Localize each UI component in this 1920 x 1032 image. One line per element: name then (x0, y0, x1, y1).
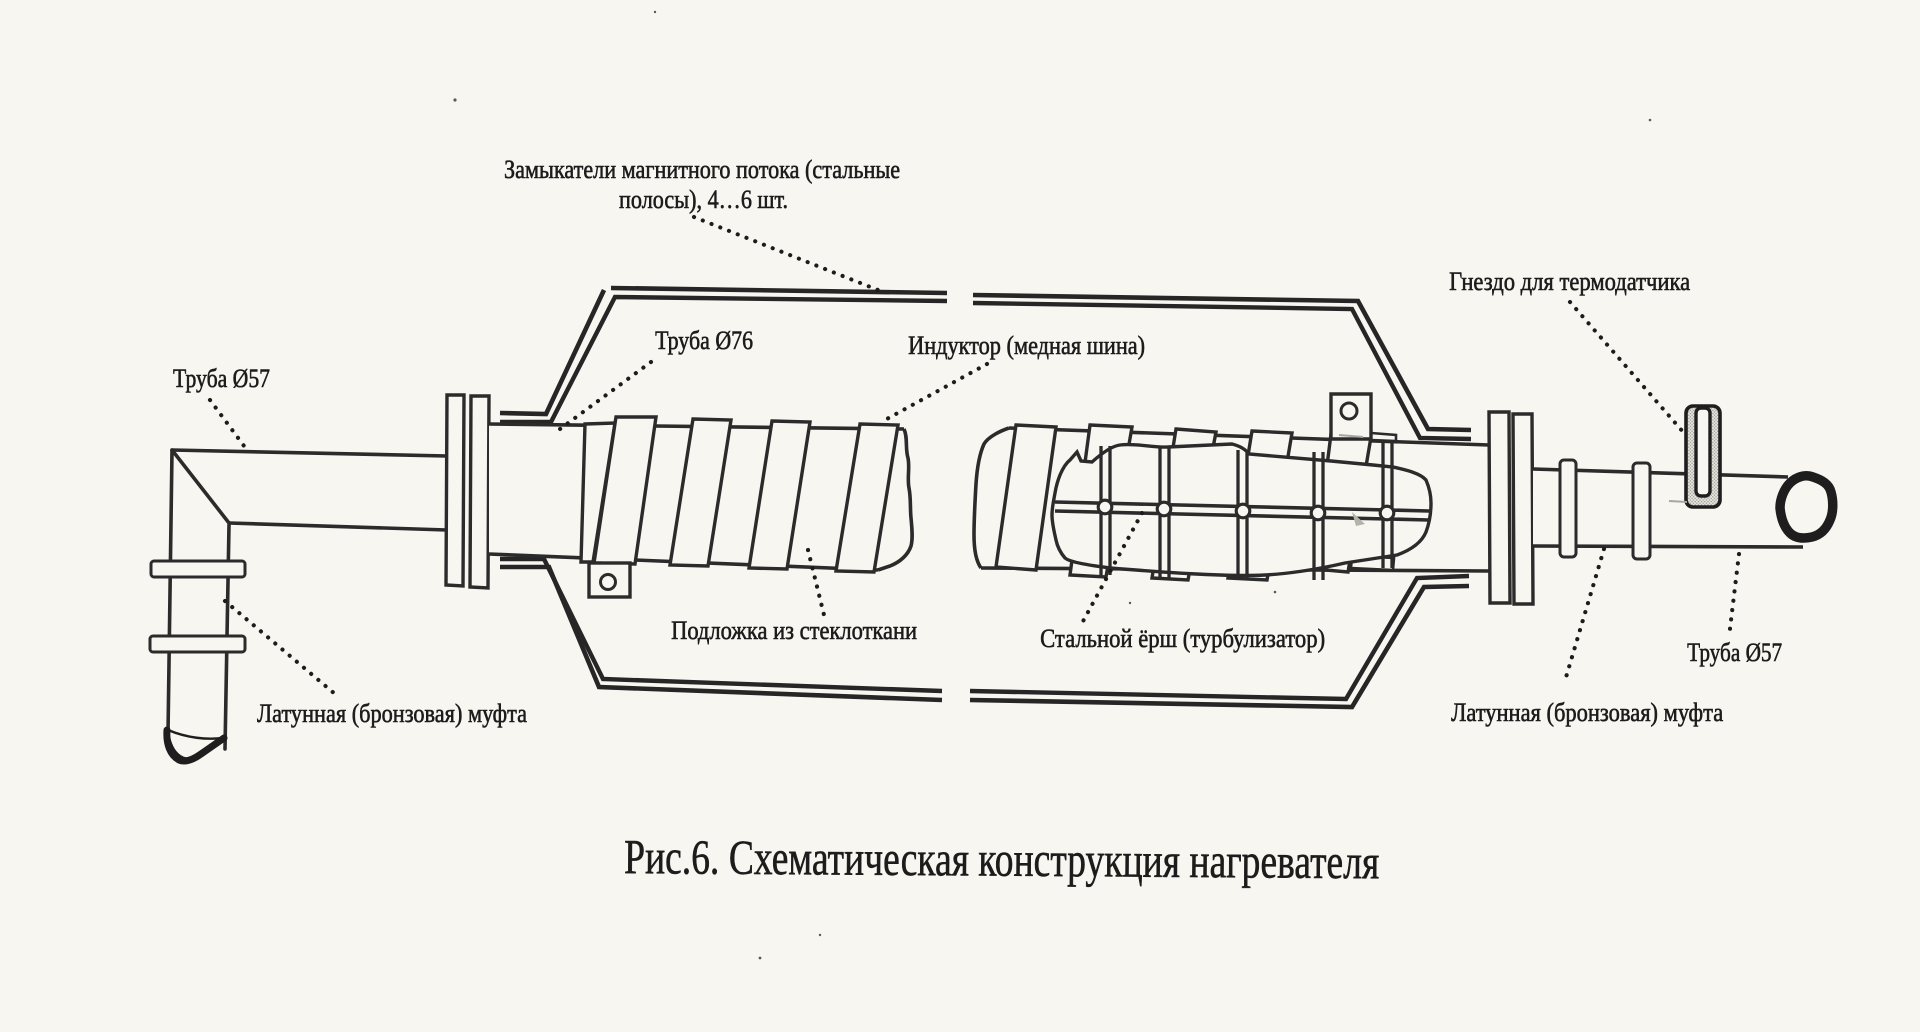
svg-text:Стальной ёрш (турбулизатор): Стальной ёрш (турбулизатор) (1040, 624, 1325, 653)
svg-text:Труба Ø76: Труба Ø76 (655, 326, 753, 355)
svg-text:Труба Ø57: Труба Ø57 (1687, 638, 1782, 667)
svg-text:Труба Ø57: Труба Ø57 (173, 364, 270, 393)
svg-text:Латунная (бронзовая) муфта: Латунная (бронзовая) муфта (257, 699, 527, 728)
svg-text:Замыкатели магнитного потока (: Замыкатели магнитного потока (стальные (504, 155, 900, 184)
svg-text:Рис.6. Схематическая конструкц: Рис.6. Схематическая конструкция нагрева… (624, 829, 1379, 889)
svg-text:полосы), 4…6 шт.: полосы), 4…6 шт. (619, 185, 788, 214)
svg-text:Латунная (бронзовая) муфта: Латунная (бронзовая) муфта (1451, 698, 1723, 727)
svg-text:Гнездо для термодатчика: Гнездо для термодатчика (1449, 267, 1690, 296)
svg-text:Подложка из стеклоткани: Подложка из стеклоткани (671, 616, 917, 645)
svg-text:Индуктор (медная шина): Индуктор (медная шина) (908, 331, 1145, 360)
